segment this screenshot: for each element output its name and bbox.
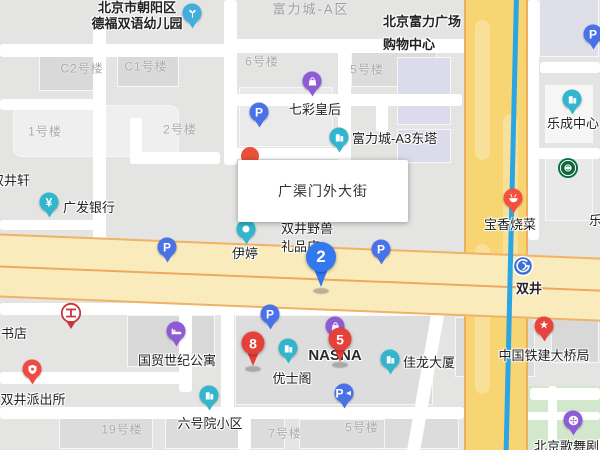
marker-number[interactable]: 5 [329, 328, 352, 351]
police-icon[interactable] [23, 360, 42, 379]
building-label: C1号楼 [124, 58, 167, 75]
marker-number[interactable]: 2 [306, 242, 336, 272]
poi-label[interactable]: 北京富力广场购物中心 [383, 10, 461, 56]
building-icon[interactable] [381, 350, 400, 369]
map-canvas[interactable]: 广渠门外大街 C2号楼C1号楼1号楼2号楼6号楼5号楼19号楼7号楼5号楼富力城… [0, 0, 600, 450]
poi-label[interactable]: 佳龙大厦 [403, 355, 455, 371]
starbucks-icon[interactable] [557, 157, 579, 179]
poi-label[interactable]: 乐 [589, 213, 600, 229]
parking-icon[interactable]: P [584, 25, 600, 44]
poi-label[interactable]: 北京市朝阳区德福双语幼儿园 [91, 0, 182, 32]
building-icon[interactable] [563, 90, 582, 109]
marker-number[interactable]: 8 [242, 332, 265, 355]
area-label: 富力城-A区 [272, 0, 349, 18]
poi-label[interactable]: 富力城-A3东塔 [352, 131, 437, 147]
building-icon[interactable] [279, 339, 298, 358]
poi-label[interactable]: 双井派出所 [0, 392, 65, 408]
building-label: C2号楼 [60, 60, 103, 77]
yuan-icon[interactable]: ¥ [40, 193, 59, 212]
food-icon[interactable] [504, 189, 523, 208]
poi-label[interactable]: 双井 [516, 281, 542, 297]
parking-icon[interactable]: P [261, 305, 280, 324]
poi-label[interactable]: 广发银行 [63, 200, 115, 216]
poi-label[interactable]: 伊婷 [232, 246, 258, 262]
icbc-icon[interactable] [60, 302, 82, 324]
poi-label[interactable]: 优士阁 [272, 371, 311, 387]
poi-label[interactable]: 国贸世纪公寓 [138, 353, 216, 369]
poi-label[interactable]: 书店 [1, 326, 27, 342]
poi-label[interactable]: 六号院小区 [177, 416, 242, 432]
poi-label[interactable]: 双井轩 [0, 173, 30, 189]
road-name-text: 广渠门外大街 [278, 181, 368, 201]
parking-icon[interactable]: P [372, 240, 391, 259]
poi-label[interactable]: 北京歌舞剧院 [534, 439, 600, 450]
road-label-card: 广渠门外大街 [238, 160, 408, 222]
building-label: 7号楼 [268, 425, 302, 442]
poi-label[interactable]: 乐成中心 [547, 116, 599, 132]
building-label: 6号楼 [245, 53, 279, 70]
kindergarten-icon[interactable] [183, 4, 202, 23]
building-icon[interactable] [200, 386, 219, 405]
poi-label[interactable]: 中国铁建大桥局 [498, 348, 589, 364]
building-label: 1号楼 [28, 123, 62, 140]
parking-icon[interactable]: P [158, 238, 177, 257]
poi-label[interactable]: 宝香烧菜 [484, 217, 536, 233]
building-label: 5号楼 [345, 419, 379, 436]
film-icon[interactable] [564, 411, 583, 430]
building-label: 19号楼 [101, 421, 142, 438]
shopping-bag-icon[interactable] [303, 72, 322, 91]
marker-shadow [245, 366, 261, 372]
parking-entrance-icon[interactable]: P◄ [335, 384, 354, 403]
star-icon[interactable]: ★ [535, 317, 554, 336]
building-label: 5号楼 [350, 61, 384, 78]
bed-icon[interactable] [167, 322, 186, 341]
dot-icon[interactable] [237, 220, 256, 239]
subway-icon[interactable] [512, 255, 534, 277]
building-icon[interactable] [330, 128, 349, 147]
marker-shadow [332, 362, 348, 368]
parking-icon[interactable]: P [250, 103, 269, 122]
building-label: 2号楼 [163, 121, 197, 138]
marker-shadow [313, 288, 329, 294]
poi-label[interactable]: 七彩皇后 [289, 102, 341, 118]
